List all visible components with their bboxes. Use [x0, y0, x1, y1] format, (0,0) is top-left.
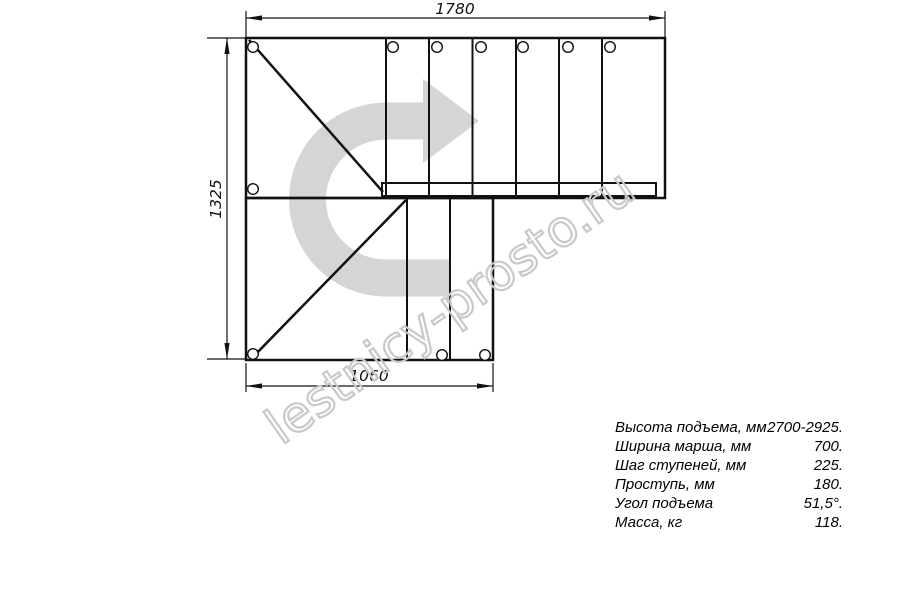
screw-hole	[248, 184, 259, 195]
dim-label-top: 1780	[435, 0, 475, 18]
screw-hole	[437, 350, 448, 361]
screw-hole	[248, 349, 259, 360]
spec-label: Высота подъема, мм	[615, 418, 767, 437]
screw-hole	[518, 42, 529, 53]
spec-row: Масса, кг 118.	[615, 513, 843, 532]
screw-hole	[476, 42, 487, 53]
specs-table: Высота подъема, мм 2700-2925. Ширина мар…	[615, 418, 843, 532]
spec-value: 118.	[815, 513, 843, 532]
spec-value: 51,5°.	[804, 494, 843, 513]
dimension-top: 1780	[246, 0, 665, 37]
screw-hole	[248, 42, 259, 53]
step-nosing-bar	[382, 183, 656, 196]
screw-hole	[563, 42, 574, 53]
dim-arrow	[246, 15, 262, 20]
spec-row: Высота подъема, мм 2700-2925.	[615, 418, 843, 437]
dim-arrow	[224, 38, 229, 54]
dim-label-bottom: 1060	[349, 367, 389, 385]
spec-row: Шаг ступеней, мм 225.	[615, 456, 843, 475]
screw-hole	[432, 42, 443, 53]
dim-arrow	[477, 383, 493, 388]
spec-row: Угол подъема 51,5°.	[615, 494, 843, 513]
dim-arrow	[246, 383, 262, 388]
spec-label: Ширина марша, мм	[615, 437, 751, 456]
screw-hole	[388, 42, 399, 53]
stair-drawing-canvas: 1780 1325 1060 lestnicy-prosto.ru Высота…	[0, 0, 900, 600]
spec-value: 2700-2925.	[767, 418, 843, 437]
spec-label: Проступь, мм	[615, 475, 715, 494]
screw-hole	[605, 42, 616, 53]
spec-value: 700.	[814, 437, 843, 456]
dim-arrow	[649, 15, 665, 20]
direction-arrow-head	[423, 79, 479, 163]
spec-label: Шаг ступеней, мм	[615, 456, 746, 475]
direction-arrow	[308, 79, 479, 278]
spec-label: Угол подъема	[615, 494, 713, 513]
dim-label-left: 1325	[207, 179, 225, 218]
spec-label: Масса, кг	[615, 513, 682, 532]
dimension-bottom: 1060	[246, 363, 493, 392]
spec-row: Проступь, мм 180.	[615, 475, 843, 494]
dimension-left: 1325	[207, 38, 246, 359]
spec-row: Ширина марша, мм 700.	[615, 437, 843, 456]
dim-arrow	[224, 343, 229, 359]
spec-value: 225.	[814, 456, 843, 475]
spec-value: 180.	[814, 475, 843, 494]
screw-hole	[480, 350, 491, 361]
